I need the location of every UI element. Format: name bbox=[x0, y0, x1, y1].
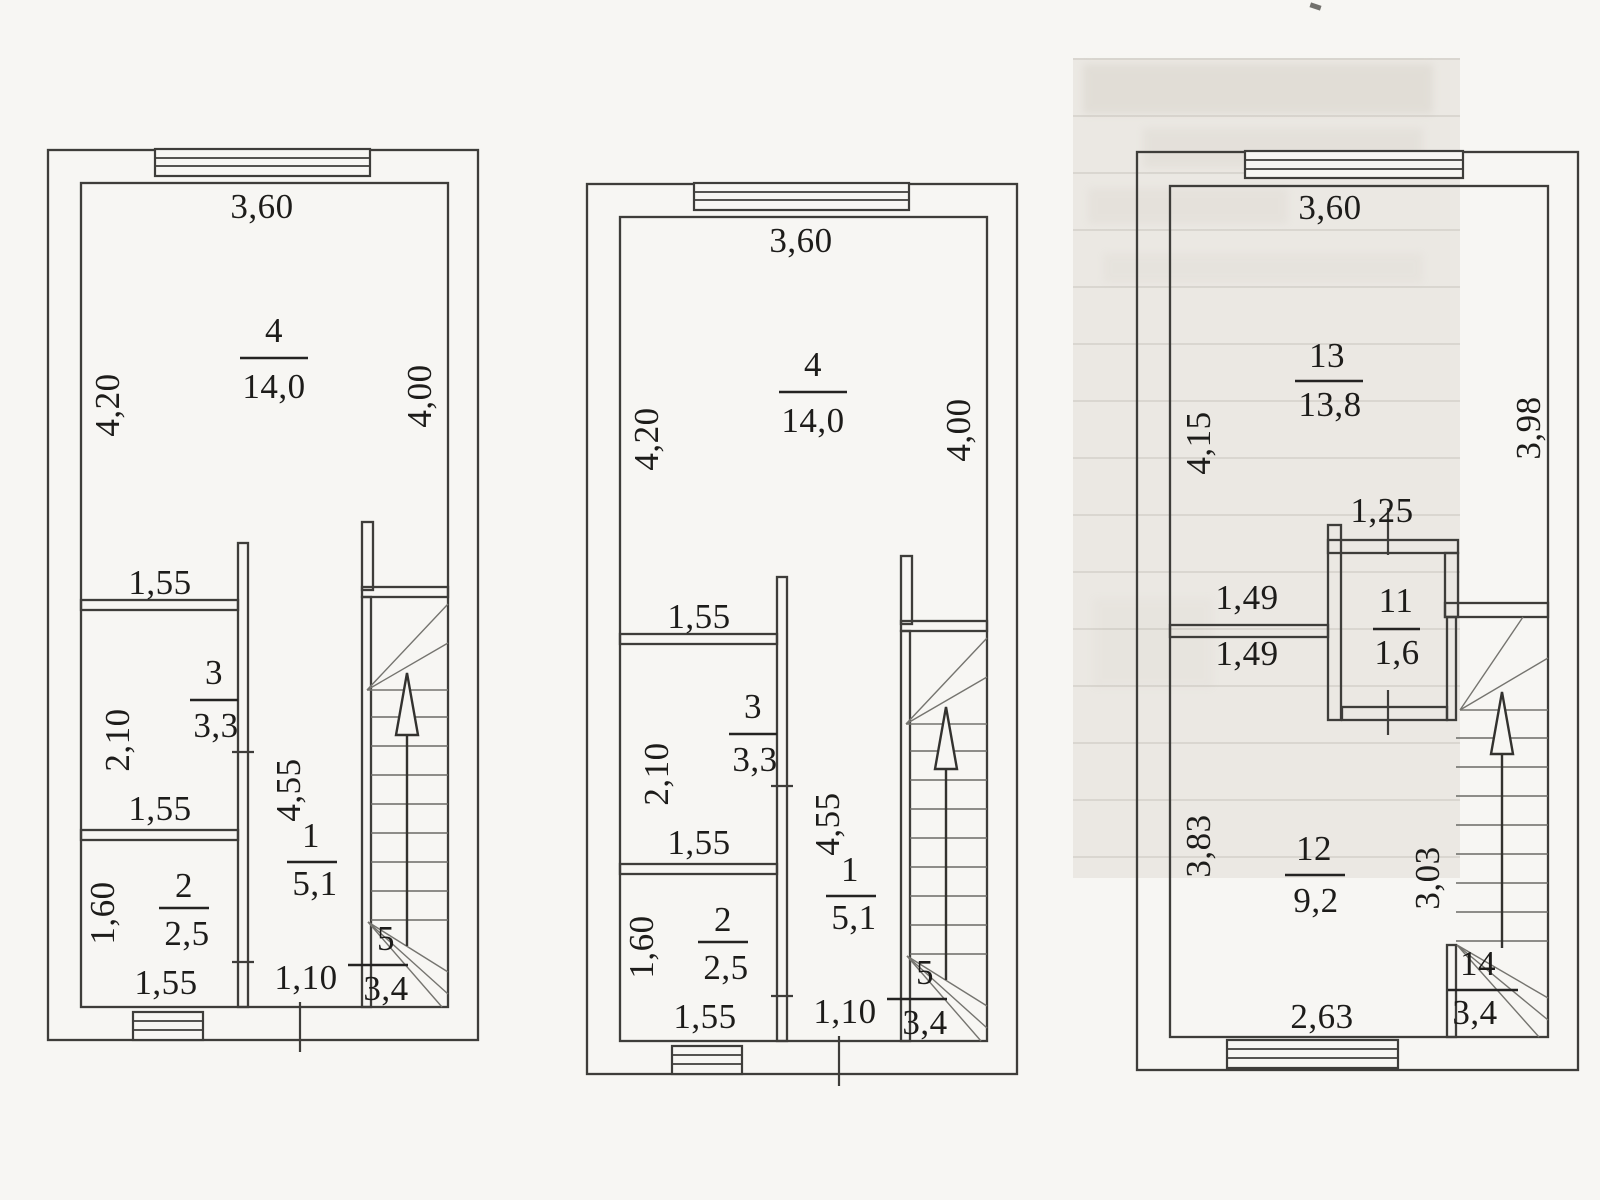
room-area: 13,8 bbox=[1298, 385, 1361, 424]
room-number: 3 bbox=[205, 653, 223, 692]
dim-room2-left: 1,60 bbox=[622, 915, 661, 978]
stairs-up-arrow-icon bbox=[396, 673, 418, 946]
room-area: 3,4 bbox=[1452, 993, 1497, 1032]
scanned-floor-plan-sheet: 3,60 4,20 4,00 1,55 2,10 4,55 1,55 1,60 … bbox=[0, 0, 1600, 1200]
dim-hall-height: 4,55 bbox=[808, 792, 847, 855]
dim-split-lower: 1,49 bbox=[1215, 634, 1278, 673]
room-number: 4 bbox=[265, 311, 283, 350]
room-number: 1 bbox=[841, 850, 859, 889]
room-label-room12: 12 9,2 bbox=[1285, 829, 1345, 920]
dim-room3-top: 1,55 bbox=[128, 563, 191, 602]
labels: 3,60 4,15 3,98 1,25 1,49 1,49 3,83 3,03 … bbox=[1179, 188, 1548, 1036]
room-number: 11 bbox=[1379, 581, 1414, 620]
room-area: 3,4 bbox=[902, 1003, 947, 1042]
dim-split-upper: 1,49 bbox=[1215, 578, 1278, 617]
dim-room3-bottom: 1,55 bbox=[128, 789, 191, 828]
dim-left-height: 4,20 bbox=[88, 373, 127, 436]
room-number: 5 bbox=[916, 953, 934, 992]
window-top bbox=[694, 183, 909, 210]
room-number: 2 bbox=[175, 866, 193, 905]
stairs-up-arrow-icon bbox=[935, 707, 957, 980]
room-area: 5,1 bbox=[831, 898, 876, 937]
room-area: 2,5 bbox=[703, 948, 748, 987]
window-bottom bbox=[672, 1046, 742, 1074]
dim-top-width: 3,60 bbox=[769, 221, 832, 260]
room-area: 3,4 bbox=[363, 969, 408, 1008]
dim-stairs-side: 3,03 bbox=[1408, 846, 1447, 909]
dim-door-width: 1,10 bbox=[813, 992, 876, 1031]
room-area: 1,6 bbox=[1374, 633, 1419, 672]
dim-room3-top: 1,55 bbox=[667, 597, 730, 636]
room-area: 3,3 bbox=[732, 740, 777, 779]
dim-door-width: 1,10 bbox=[274, 958, 337, 997]
dim-left-height: 4,15 bbox=[1179, 411, 1218, 474]
room-number: 5 bbox=[377, 919, 395, 958]
dim-room3-bottom: 1,55 bbox=[667, 823, 730, 862]
dim-room12-left: 3,83 bbox=[1179, 814, 1218, 877]
window-top bbox=[155, 149, 370, 176]
dim-bottom-width: 2,63 bbox=[1290, 997, 1353, 1036]
dim-closet-top: 1,25 bbox=[1350, 491, 1413, 530]
dim-left-height: 4,20 bbox=[627, 407, 666, 470]
room-number: 14 bbox=[1460, 944, 1496, 983]
room-area: 3,3 bbox=[193, 706, 238, 745]
room-area: 14,0 bbox=[781, 401, 844, 440]
room-number: 13 bbox=[1309, 336, 1345, 375]
room-label-main: 13 13,8 bbox=[1295, 336, 1363, 424]
room-number: 12 bbox=[1296, 829, 1332, 868]
room-number: 4 bbox=[804, 345, 822, 384]
stairs-up-arrow-icon bbox=[1491, 692, 1513, 948]
window-bottom bbox=[1227, 1040, 1398, 1068]
room-number: 2 bbox=[714, 900, 732, 939]
floor-plan-1: 3,60 4,20 4,00 1,55 2,10 4,55 1,55 1,60 … bbox=[46, 146, 482, 1076]
scan-smudge bbox=[1083, 64, 1433, 114]
dim-right-height: 4,00 bbox=[939, 398, 978, 461]
dim-hall-height: 4,55 bbox=[269, 758, 308, 821]
room-number: 3 bbox=[744, 687, 762, 726]
room-label-stairs: 5 3,4 bbox=[887, 953, 948, 1042]
room-area: 2,5 bbox=[164, 914, 209, 953]
dim-room3-left: 2,10 bbox=[637, 742, 676, 805]
dim-right-height: 4,00 bbox=[400, 364, 439, 427]
floor-plan-3: 3,60 4,15 3,98 1,25 1,49 1,49 3,83 3,03 … bbox=[1135, 150, 1582, 1075]
room-label-closet: 11 1,6 bbox=[1373, 581, 1420, 672]
pen-mark bbox=[1309, 2, 1321, 10]
room-label-stairs: 5 3,4 bbox=[348, 919, 409, 1008]
room-label-room2: 2 2,5 bbox=[698, 900, 749, 987]
dim-room2-bottom: 1,55 bbox=[673, 997, 736, 1036]
room-label-main: 4 14,0 bbox=[240, 311, 308, 406]
room-number: 1 bbox=[302, 816, 320, 855]
room-area: 5,1 bbox=[292, 864, 337, 903]
dim-room2-bottom: 1,55 bbox=[134, 963, 197, 1002]
dim-right-height: 3,98 bbox=[1509, 396, 1548, 459]
dim-top-width: 3,60 bbox=[1298, 188, 1361, 227]
floor-plan-2: 3,60 4,20 4,00 1,55 2,10 4,55 1,55 1,60 … bbox=[585, 180, 1021, 1110]
room-label-room2: 2 2,5 bbox=[159, 866, 210, 953]
window-top bbox=[1245, 151, 1463, 178]
room-area: 14,0 bbox=[242, 367, 305, 406]
room-label-hall: 1 5,1 bbox=[287, 816, 338, 903]
room-label-room3: 3 3,3 bbox=[729, 687, 778, 779]
room-label-room3: 3 3,3 bbox=[190, 653, 239, 745]
dim-top-width: 3,60 bbox=[230, 187, 293, 226]
room-label-hall: 1 5,1 bbox=[826, 850, 877, 937]
window-bottom bbox=[133, 1012, 203, 1040]
dim-room3-left: 2,10 bbox=[98, 708, 137, 771]
room-label-stairs: 14 3,4 bbox=[1448, 944, 1518, 1032]
room-area: 9,2 bbox=[1293, 881, 1338, 920]
room-label-main: 4 14,0 bbox=[779, 345, 847, 440]
walls bbox=[1137, 152, 1578, 1070]
dim-room2-left: 1,60 bbox=[83, 881, 122, 944]
